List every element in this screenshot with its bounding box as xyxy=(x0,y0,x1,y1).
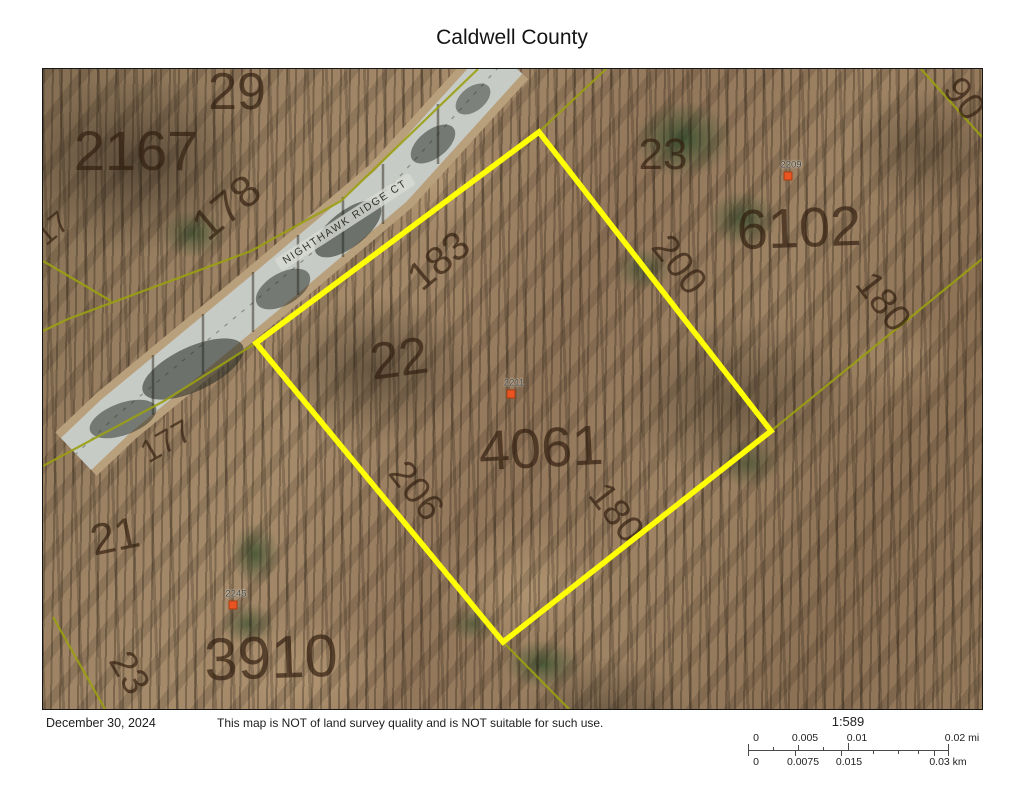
scale-tick-label: 0 xyxy=(753,732,759,744)
scale-tick-label: 0.015 xyxy=(836,756,862,768)
scale-tick xyxy=(934,751,935,756)
scale-tick xyxy=(848,743,849,750)
scale-bar: 1:589 00.0050.010.02 mi00.00750.0150.03 … xyxy=(740,706,990,786)
map-date: December 30, 2024 xyxy=(46,716,156,730)
scale-tick xyxy=(918,751,919,754)
scale-tick-label: 0.03 km xyxy=(929,756,966,768)
scale-tick xyxy=(841,751,842,756)
selected-parcel-highlight-layer xyxy=(43,69,982,709)
scale-tick xyxy=(873,751,874,754)
selected-parcel-outline xyxy=(256,132,771,642)
scale-tick-label: 0.01 xyxy=(847,732,867,744)
page-title: Caldwell County xyxy=(0,26,1024,50)
aerial-map: 2921671781718322177212064061180236102200… xyxy=(42,68,983,710)
disclaimer-text: This map is NOT of land survey quality a… xyxy=(217,716,603,730)
scale-ratio: 1:589 xyxy=(748,714,948,729)
scale-tick xyxy=(948,744,949,756)
scale-tick-label: 0.02 mi xyxy=(945,732,979,744)
scale-tick xyxy=(748,744,749,756)
scale-tick xyxy=(773,747,774,750)
scale-tick xyxy=(795,751,796,756)
scale-tick xyxy=(823,747,824,750)
scale-tick-label: 0.0075 xyxy=(787,756,819,768)
map-export-page: Caldwell County 292167178171832217721206… xyxy=(0,0,1024,791)
scale-tick xyxy=(898,751,899,754)
scale-tick xyxy=(798,745,799,750)
scale-tick-label: 0 xyxy=(753,756,759,768)
scale-tick-label: 0.005 xyxy=(792,732,818,744)
